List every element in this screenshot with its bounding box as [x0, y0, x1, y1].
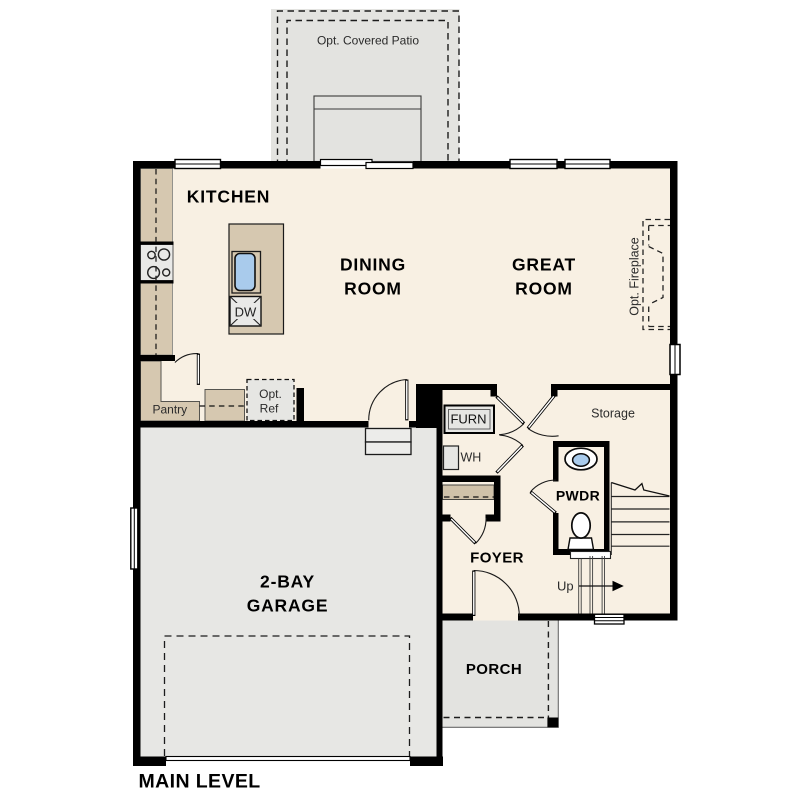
svg-text:Pantry: Pantry: [153, 403, 188, 417]
svg-text:Ref: Ref: [260, 402, 279, 416]
svg-text:GARAGE: GARAGE: [247, 596, 329, 616]
svg-text:MAIN LEVEL: MAIN LEVEL: [139, 771, 261, 793]
svg-text:Storage: Storage: [591, 407, 635, 421]
svg-text:WH: WH: [461, 451, 482, 465]
svg-text:Opt.: Opt.: [259, 387, 282, 401]
svg-text:ROOM: ROOM: [344, 279, 402, 299]
svg-text:PWDR: PWDR: [556, 488, 600, 504]
svg-text:DINING: DINING: [340, 255, 406, 275]
svg-text:ROOM: ROOM: [515, 279, 573, 299]
svg-text:FURN: FURN: [450, 412, 486, 427]
svg-text:2-BAY: 2-BAY: [260, 572, 315, 592]
svg-text:FOYER: FOYER: [470, 550, 524, 567]
svg-text:GREAT: GREAT: [512, 255, 576, 275]
svg-text:PORCH: PORCH: [466, 661, 522, 678]
svg-text:Up: Up: [557, 579, 574, 594]
svg-text:Opt. Fireplace: Opt. Fireplace: [628, 237, 642, 316]
svg-text:KITCHEN: KITCHEN: [187, 187, 270, 207]
svg-text:DW: DW: [235, 305, 257, 320]
svg-text:Opt. Covered Patio: Opt. Covered Patio: [317, 34, 419, 48]
